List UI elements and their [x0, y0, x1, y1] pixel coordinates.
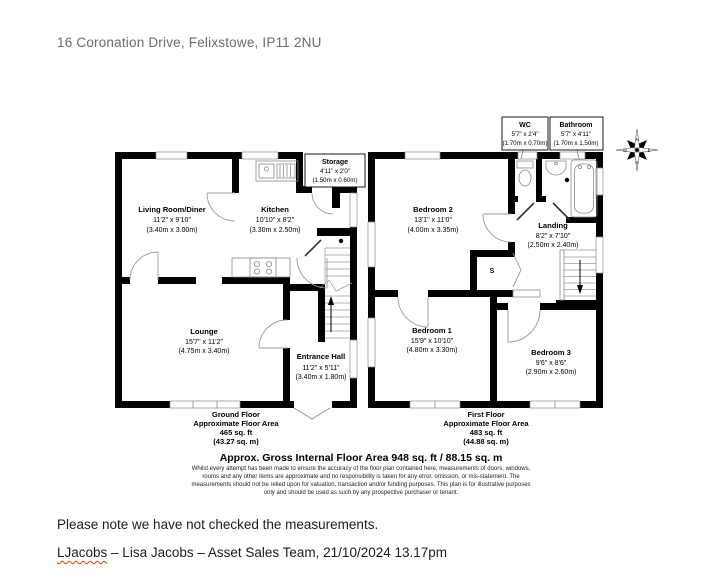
svg-text:9'6" x 8'6": 9'6" x 8'6"	[536, 360, 567, 367]
kitchen-sink-unit	[256, 161, 298, 181]
basin	[546, 161, 566, 175]
room-label-living-room-diner: Living Room/Diner 11'2" x 9'10" (3.40m x…	[138, 205, 206, 234]
svg-text:(4.00m x 3.35m): (4.00m x 3.35m)	[408, 227, 459, 234]
svg-text:10'10" x 8'2": 10'10" x 8'2"	[256, 217, 295, 224]
svg-text:Bathroom: Bathroom	[559, 122, 592, 129]
svg-text:WC: WC	[519, 122, 531, 129]
svg-text:(3.40m x 3.00m): (3.40m x 3.00m)	[147, 227, 198, 234]
svg-text:Bedroom 3: Bedroom 3	[531, 348, 571, 357]
ground-floor-footer: Ground Floor Approximate Floor Area 465 …	[193, 410, 279, 446]
svg-text:(44.88 sq. m): (44.88 sq. m)	[463, 437, 509, 446]
floorplan-svg: Storage 4'11" x 2'0" (1.50m x 0.60m) Liv…	[88, 105, 680, 500]
svg-text:(2.90m x 2.60m): (2.90m x 2.60m)	[526, 369, 577, 376]
room-label-entrance-hall: Entrance Hall 11'2" x 5'11" (3.40m x 1.8…	[296, 352, 347, 381]
kitchen-hob	[232, 258, 290, 277]
disclaimer-line-1: Whilst every attempt has been made to en…	[192, 466, 531, 472]
svg-text:Ground Floor: Ground Floor	[212, 410, 260, 419]
svg-text:(3.30m x 2.50m): (3.30m x 2.50m)	[250, 227, 301, 234]
cupboard-fold-door	[513, 253, 521, 287]
compass-rose: N S E W	[616, 129, 658, 171]
disclaimer-line-2: rooms and any other items are approximat…	[202, 474, 520, 480]
disclaimer-line-4: only and should be used as such by any p…	[264, 490, 459, 496]
svg-text:Approximate Floor Area: Approximate Floor Area	[443, 419, 529, 428]
floorplan-image: Storage 4'11" x 2'0" (1.50m x 0.60m) Liv…	[88, 105, 680, 500]
measurements-note: Please note we have not checked the meas…	[57, 517, 378, 532]
svg-text:5'7" x 2'4": 5'7" x 2'4"	[511, 131, 538, 138]
signature-username: LJacobs	[57, 545, 107, 560]
svg-text:(43.27 sq. m): (43.27 sq. m)	[213, 437, 259, 446]
svg-text:Approximate Floor Area: Approximate Floor Area	[193, 419, 279, 428]
room-label-bedroom-1: Bedroom 1 15'9" x 10'10" (4.80m x 3.30m)	[407, 326, 458, 354]
compass-east-label: E	[648, 148, 651, 153]
svg-text:483 sq. ft: 483 sq. ft	[470, 428, 503, 437]
svg-text:11'2" x 5'11": 11'2" x 5'11"	[302, 365, 340, 372]
svg-text:8'2" x 7'10": 8'2" x 7'10"	[536, 233, 571, 240]
compass-north-label: N	[635, 137, 638, 142]
svg-text:13'1" x 11'0": 13'1" x 11'0"	[414, 217, 452, 224]
svg-text:(2.50m x 2.40m): (2.50m x 2.40m)	[528, 242, 579, 249]
signature-rest: – Lisa Jacobs – Asset Sales Team, 21/10/…	[107, 545, 447, 560]
disclaimer-line-3: measurements should not be relied upon f…	[191, 482, 530, 488]
svg-text:15'7" x 11'2": 15'7" x 11'2"	[185, 339, 223, 346]
ground-floor-plan: Storage 4'11" x 2'0" (1.50m x 0.60m) Liv…	[115, 152, 365, 446]
stairs-up-arrow	[328, 296, 334, 305]
svg-text:Bedroom 1: Bedroom 1	[412, 326, 452, 335]
room-name: Storage	[322, 159, 348, 166]
floor-area-summary: Approx. Gross Internal Floor Area 948 sq…	[191, 452, 530, 496]
first-floor-stairs	[560, 250, 596, 300]
svg-text:(3.40m x 1.80m): (3.40m x 1.80m)	[296, 374, 347, 381]
svg-text:15'9" x 10'10": 15'9" x 10'10"	[411, 338, 454, 345]
svg-text:Living Room/Diner: Living Room/Diner	[138, 205, 206, 214]
svg-text:Kitchen: Kitchen	[261, 205, 289, 214]
property-address-title: 16 Coronation Drive, Felixstowe, IP11 2N…	[57, 35, 322, 50]
toilet	[517, 161, 533, 186]
svg-text:First Floor: First Floor	[467, 410, 504, 419]
room-dim-metric: (1.50m x 0.60m)	[312, 177, 357, 184]
room-dim-imperial: 4'11" x 2'0"	[320, 168, 350, 175]
svg-text:11'2" x 9'10": 11'2" x 9'10"	[153, 217, 191, 224]
door-stop-dot	[339, 239, 343, 243]
svg-text:Lounge: Lounge	[190, 327, 217, 336]
svg-text:(4.80m x 3.30m): (4.80m x 3.30m)	[407, 347, 458, 354]
storage-label-box: Storage 4'11" x 2'0" (1.50m x 0.60m)	[305, 154, 365, 187]
gross-floor-area-title: Approx. Gross Internal Floor Area 948 sq…	[220, 452, 503, 464]
first-floor-footer: First Floor Approximate Floor Area 483 s…	[443, 410, 529, 446]
room-label-lounge: Lounge 15'7" x 11'2" (4.75m x 3.40m)	[179, 327, 230, 355]
room-label-landing: Landing 8'2" x 7'10" (2.50m x 2.40m)	[528, 221, 579, 249]
svg-text:(1.70m x 0.70m): (1.70m x 0.70m)	[502, 140, 547, 147]
bathtub	[571, 160, 597, 217]
signature-line: LJacobs – Lisa Jacobs – Asset Sales Team…	[57, 545, 447, 560]
front-door-porch	[294, 408, 330, 419]
svg-text:465 sq. ft: 465 sq. ft	[220, 428, 253, 437]
svg-text:5'7" x 4'11": 5'7" x 4'11"	[561, 131, 591, 138]
svg-text:(1.70m x 1.50m): (1.70m x 1.50m)	[553, 140, 598, 147]
svg-text:Bedroom 2: Bedroom 2	[413, 205, 453, 214]
svg-text:Landing: Landing	[538, 221, 568, 230]
bedroom-door-bar	[513, 290, 540, 297]
svg-text:(4.75m x 3.40m): (4.75m x 3.40m)	[179, 348, 230, 355]
svg-text:Entrance Hall: Entrance Hall	[297, 352, 346, 361]
room-label-bedroom-3: Bedroom 3 9'6" x 8'6" (2.90m x 2.60m)	[526, 348, 577, 376]
compass-south-label: S	[636, 160, 639, 165]
room-label-bedroom-2: Bedroom 2 13'1" x 11'0" (4.00m x 3.35m)	[408, 205, 459, 234]
room-label-kitchen: Kitchen 10'10" x 8'2" (3.30m x 2.50m)	[250, 205, 301, 234]
compass-west-label: W	[623, 148, 627, 153]
first-floor-plan: WC 5'7" x 2'4" (1.70m x 0.70m) Bathroom …	[368, 117, 603, 446]
storage-cupboard-label: S	[490, 268, 495, 275]
